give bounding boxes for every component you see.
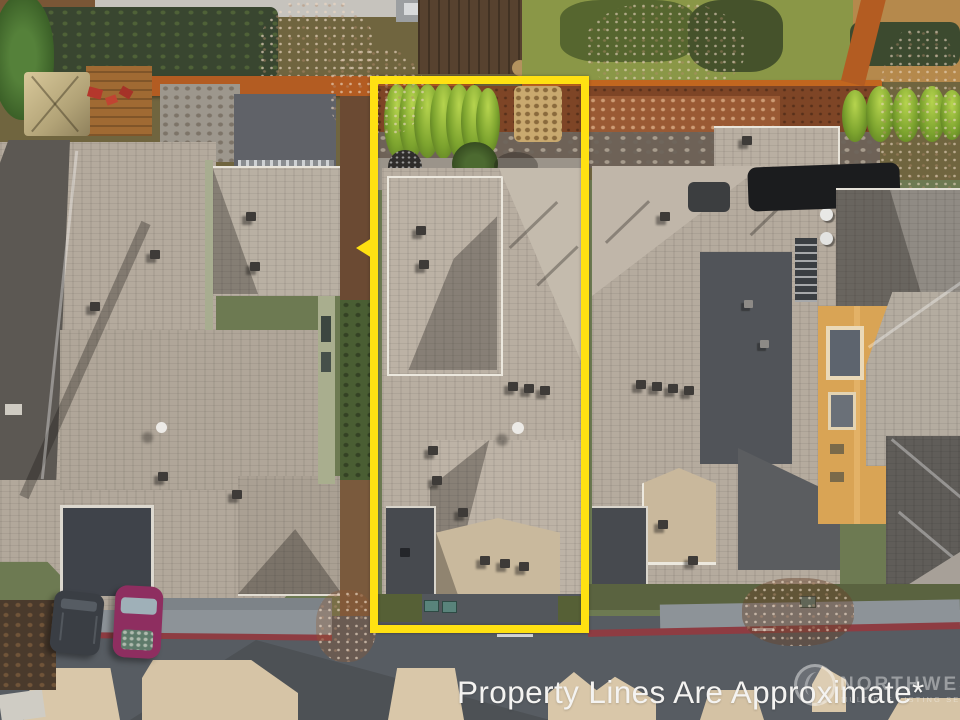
green-wall-gap bbox=[205, 160, 213, 334]
deck-boards-left-yard bbox=[86, 66, 152, 136]
dark-pile bbox=[688, 182, 730, 212]
left-house-roof-mid bbox=[60, 330, 318, 490]
stucco-window bbox=[826, 326, 864, 380]
mulch-bed-bottom-left bbox=[0, 600, 56, 690]
right-porch-roof bbox=[642, 468, 716, 565]
roof-vent bbox=[158, 472, 168, 481]
bare-tree-road-left bbox=[316, 590, 376, 662]
hedge-top-left bbox=[30, 7, 278, 78]
roof-vent bbox=[684, 386, 694, 395]
suv-windshield bbox=[60, 598, 97, 612]
roof-vent bbox=[668, 384, 678, 393]
roof-vent bbox=[760, 340, 769, 348]
roof-vent bbox=[688, 556, 698, 565]
carport-opening bbox=[60, 505, 154, 596]
wood-deck-top-center bbox=[418, 0, 522, 74]
roof-vent bbox=[652, 382, 662, 391]
car-rear-window bbox=[121, 629, 154, 651]
caption-property-lines: Property Lines Are Approximate* bbox=[457, 674, 925, 711]
roof-antenna-left-house bbox=[156, 422, 167, 433]
roof-vent bbox=[150, 250, 160, 259]
roof-vent bbox=[744, 300, 753, 308]
satellite-dish bbox=[820, 208, 833, 221]
roof-vent bbox=[232, 490, 242, 499]
bare-bush-road-right bbox=[742, 578, 854, 646]
parking-bumper-blocks bbox=[0, 689, 46, 720]
entry-stairs bbox=[795, 238, 817, 302]
suv-roof-rails bbox=[59, 612, 98, 644]
stucco-vent bbox=[830, 472, 844, 482]
stucco-window bbox=[828, 392, 856, 430]
curb-paint-marking bbox=[497, 634, 533, 637]
roof-vent bbox=[658, 520, 668, 529]
sage-wall-window bbox=[321, 352, 331, 372]
roof-vent bbox=[246, 212, 256, 221]
right-garage-flat-roof bbox=[592, 506, 648, 596]
right-house-dark-flat-section bbox=[700, 252, 792, 464]
car-windshield bbox=[120, 597, 157, 615]
satellite-dish bbox=[820, 232, 833, 245]
juniper-shrub bbox=[842, 90, 868, 142]
sage-wall-window bbox=[321, 316, 331, 342]
stucco-vent bbox=[830, 444, 844, 454]
aerial-photo: NORTHWEST MULTIPLE LISTING SERVICE Prope… bbox=[0, 0, 960, 720]
driveway-apron bbox=[388, 668, 464, 720]
roof-vent bbox=[250, 262, 260, 271]
roof-vent bbox=[742, 136, 752, 145]
canopy-tent bbox=[24, 72, 90, 136]
skylight bbox=[5, 404, 22, 415]
parked-suv bbox=[49, 590, 105, 657]
roof-vent bbox=[660, 212, 670, 221]
roof-vent bbox=[636, 380, 646, 389]
parked-magenta-car bbox=[112, 585, 164, 659]
roof-vent bbox=[90, 302, 100, 311]
property-line-outline bbox=[370, 76, 589, 633]
